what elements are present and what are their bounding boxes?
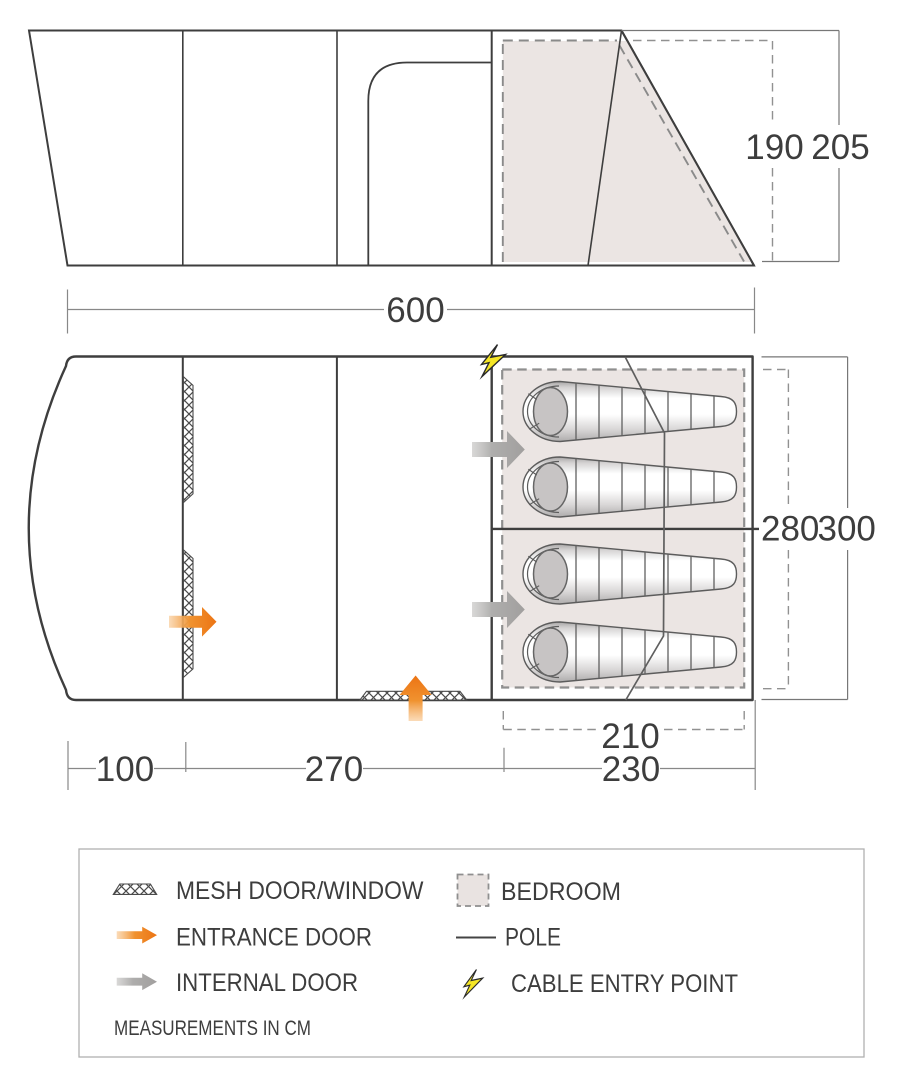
svg-text:270: 270 [305, 750, 363, 789]
svg-text:230: 230 [602, 750, 660, 789]
svg-text:INTERNAL DOOR: INTERNAL DOOR [176, 969, 358, 997]
svg-text:POLE: POLE [505, 924, 561, 952]
svg-text:300: 300 [817, 510, 875, 549]
svg-text:205: 205 [811, 128, 869, 167]
svg-text:190: 190 [745, 128, 803, 167]
svg-text:100: 100 [96, 750, 154, 789]
svg-text:CABLE ENTRY POINT: CABLE ENTRY POINT [511, 970, 738, 998]
svg-text:280: 280 [761, 510, 819, 549]
svg-text:BEDROOM: BEDROOM [501, 878, 621, 906]
svg-text:MEASUREMENTS IN CM: MEASUREMENTS IN CM [114, 1016, 311, 1040]
svg-text:600: 600 [386, 291, 444, 330]
svg-text:MESH DOOR/WINDOW: MESH DOOR/WINDOW [176, 877, 424, 905]
svg-text:ENTRANCE DOOR: ENTRANCE DOOR [176, 924, 372, 952]
